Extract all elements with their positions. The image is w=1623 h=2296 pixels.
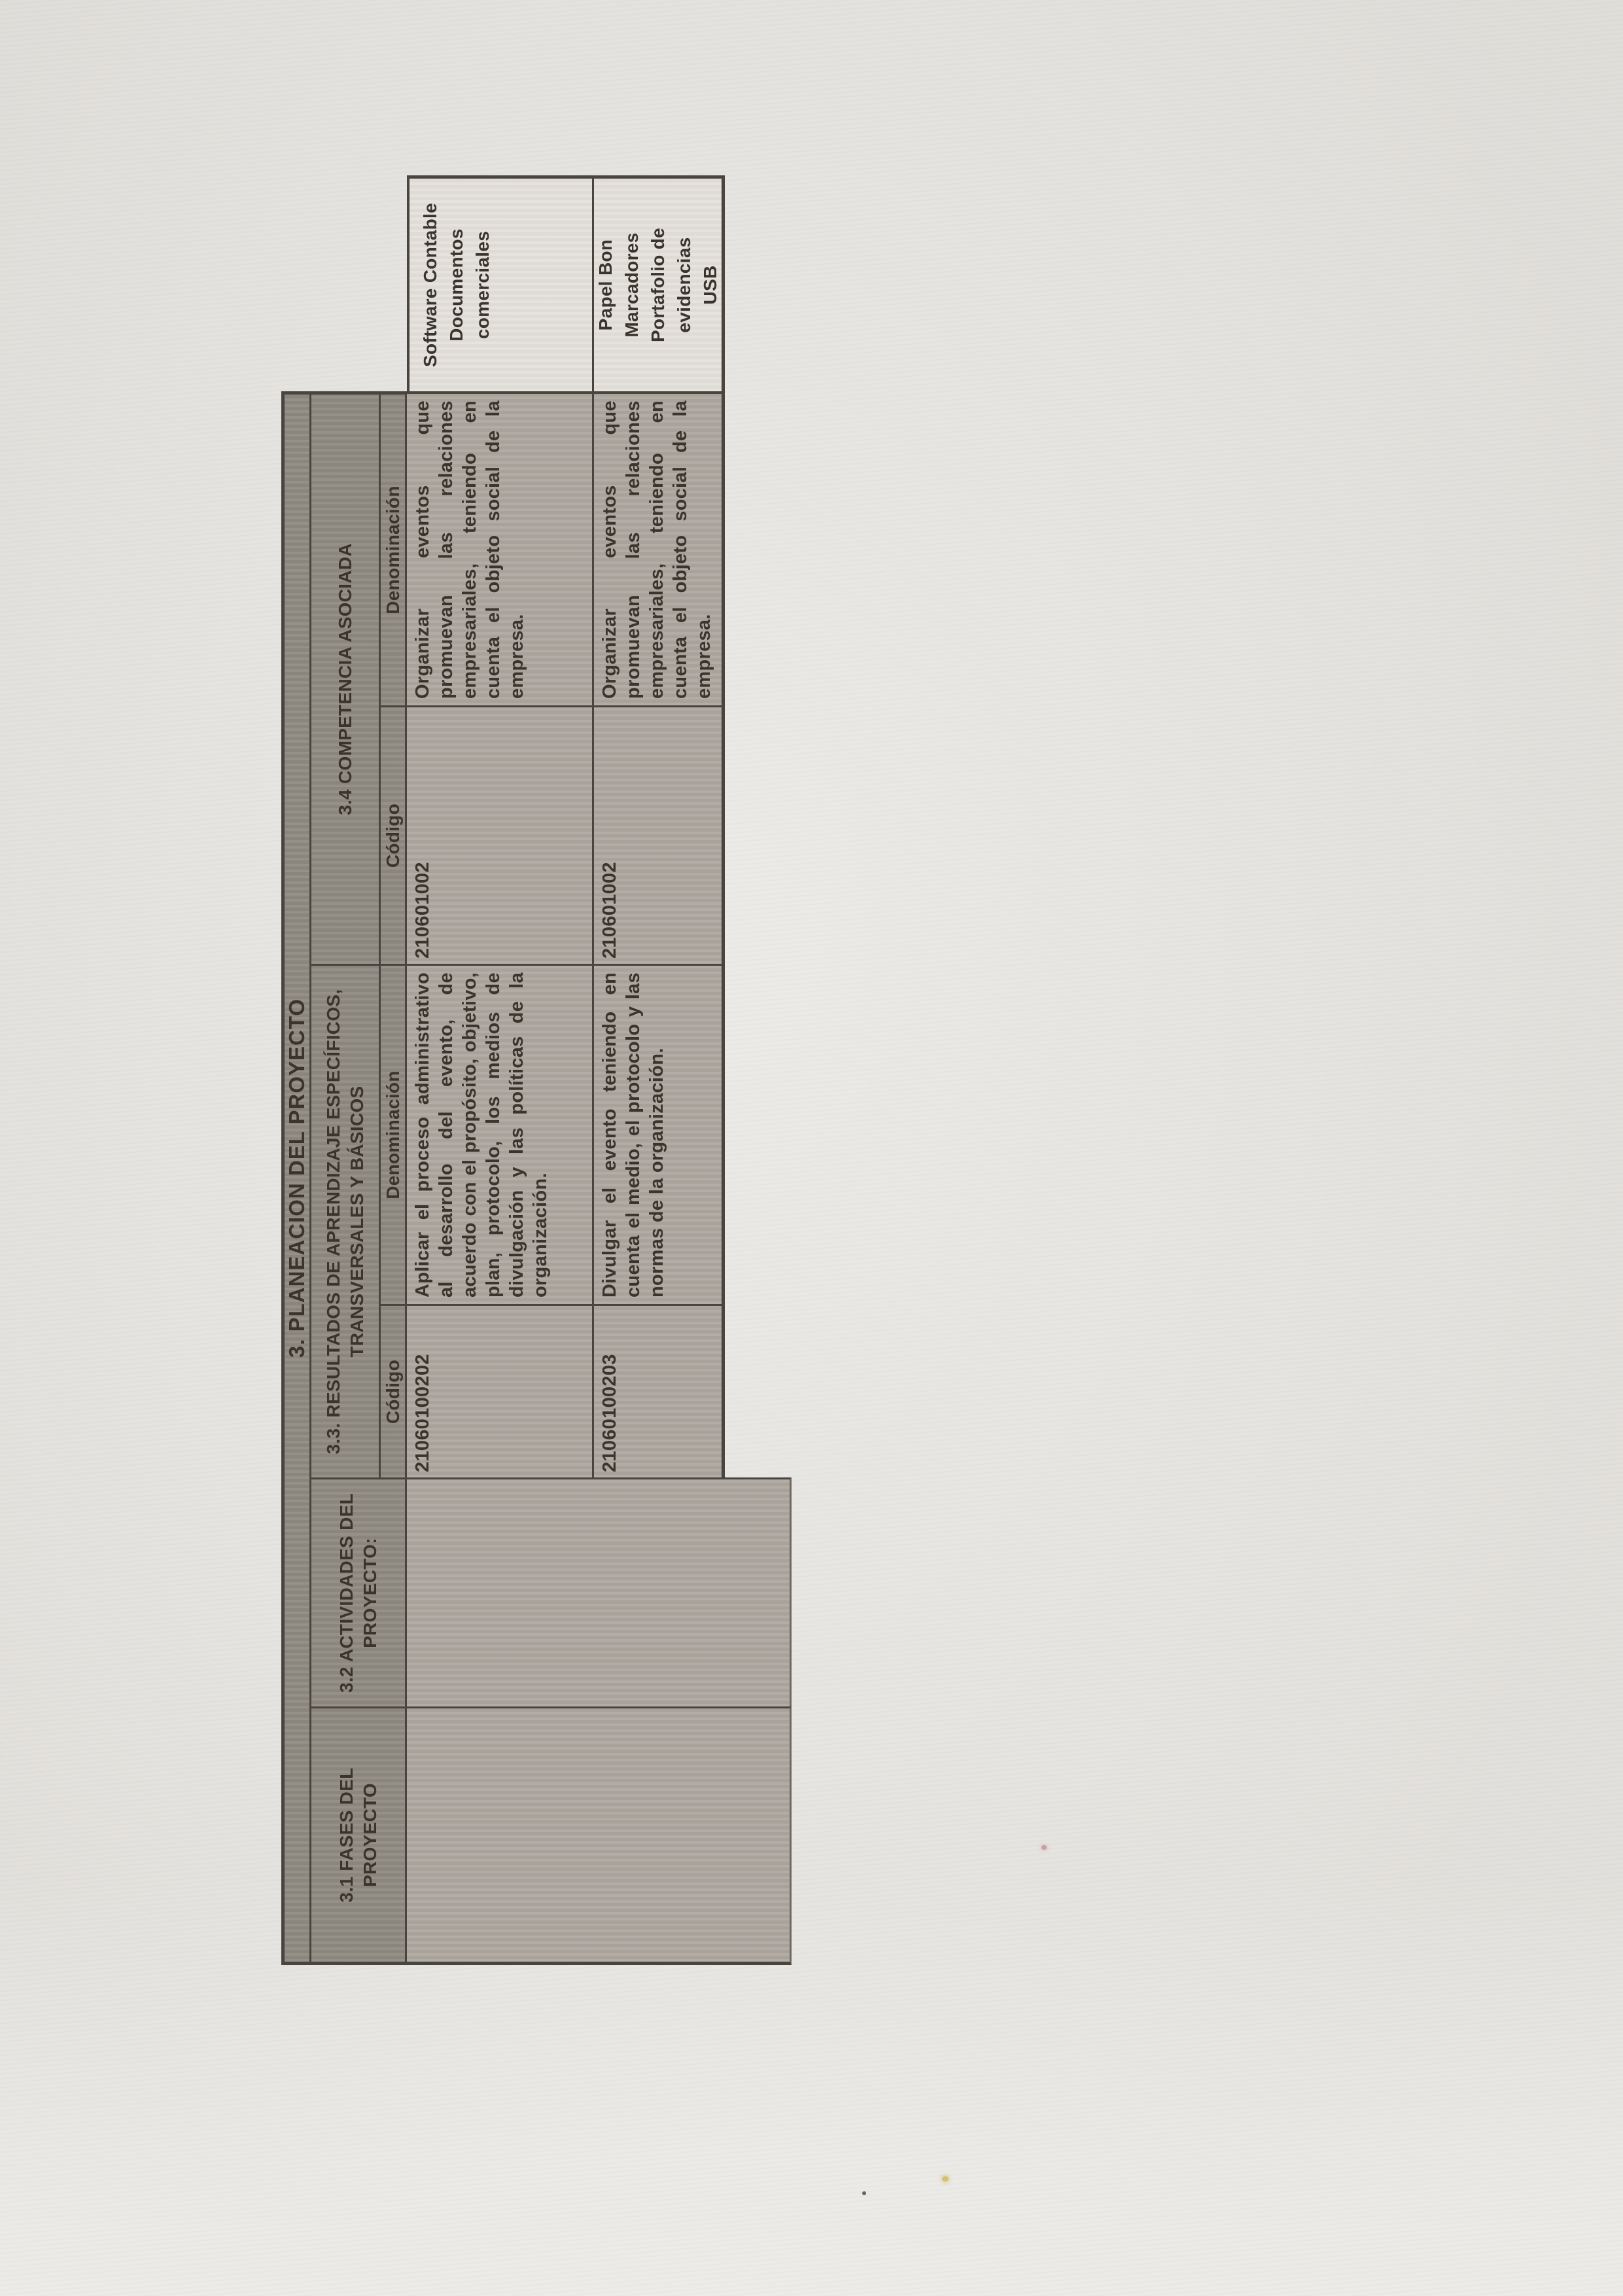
table-rotation-surface: 3. PLANEACION DEL PROYECTO 3.1 FASES DEL… (281, 175, 792, 1965)
paper-speck-yellow (942, 2176, 949, 2181)
paper-speck-dark (862, 2191, 866, 2195)
subheader-codigo-resultados: Código (381, 1304, 407, 1477)
cell-codigo-competencia-1: 210601002 (407, 705, 594, 964)
cell-denominacion-competencia-1: Organizar eventos que promuevan las rela… (407, 391, 594, 705)
subheader-denominacion-resultados: Denominación (381, 964, 407, 1304)
paper-speck-pink (1041, 1845, 1047, 1850)
cell-materiales-2: Papel Bon Marcadores Portafolio de evide… (594, 175, 725, 391)
header-actividades-del-proyecto: 3.2 ACTIVIDADES DEL PROYECTO: (311, 1477, 407, 1706)
subheader-denominacion-competencia: Denominación (381, 391, 407, 705)
cell-denominacion-resultado-2: Divulgar el evento teniendo en cuenta el… (594, 964, 725, 1304)
banner-planeacion-del-proyecto: 3. PLANEACION DEL PROYECTO (281, 391, 311, 1965)
subheader-codigo-competencia: Código (381, 705, 407, 964)
cell-actividades-empty (407, 1477, 792, 1706)
cell-codigo-resultado-1: 21060100202 (407, 1304, 594, 1477)
cell-codigo-competencia-2: 210601002 (594, 705, 725, 964)
cell-materiales-1: Software Contable Documentos comerciales (407, 175, 594, 391)
cell-denominacion-competencia-2: Organizar eventos que promuevan las rela… (594, 391, 725, 705)
rotated-table-wrapper: 3. PLANEACION DEL PROYECTO 3.1 FASES DEL… (281, 175, 792, 1965)
scanned-page: 3. PLANEACION DEL PROYECTO 3.1 FASES DEL… (0, 0, 1623, 2296)
header-fases-del-proyecto: 3.1 FASES DEL PROYECTO (311, 1706, 407, 1965)
cell-codigo-resultado-2: 21060100203 (594, 1304, 725, 1477)
cell-denominacion-resultado-1: Aplicar el proceso administrativo al des… (407, 964, 594, 1304)
cell-fases-empty (407, 1706, 792, 1965)
header-resultados-aprendizaje: 3.3. RESULTADOS DE APRENDIZAJE ESPECÍFIC… (311, 964, 381, 1477)
project-planning-table: 3. PLANEACION DEL PROYECTO 3.1 FASES DEL… (281, 175, 792, 1965)
header-competencia-asociada: 3.4 COMPETENCIA ASOCIADA (311, 391, 381, 964)
